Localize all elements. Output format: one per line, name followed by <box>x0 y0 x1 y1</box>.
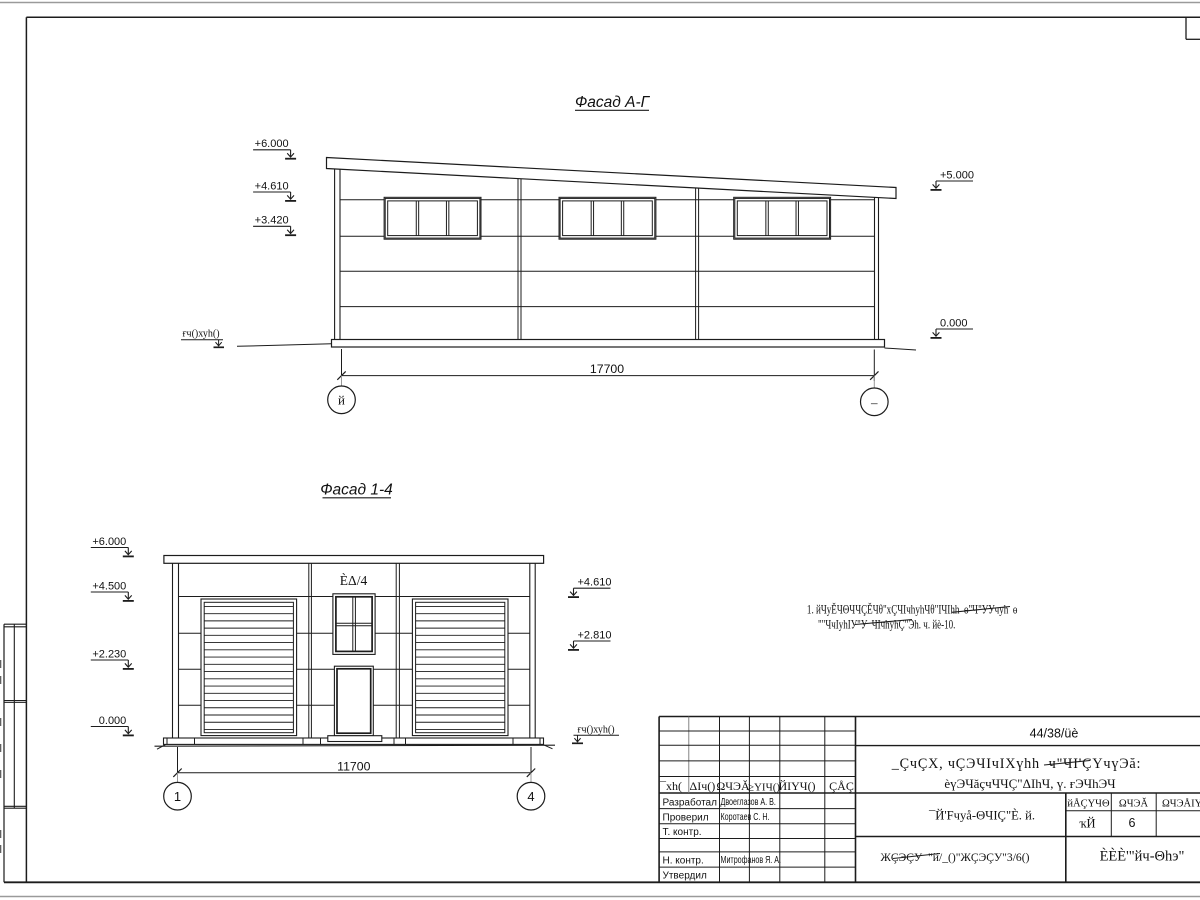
svg-text:ҡЙ: ҡЙ <box>1079 817 1095 831</box>
svg-text:Т. контр.: Т. контр. <box>663 827 702 838</box>
svg-text:èүЭЧăçчЧЧÇ"ΔΙhЧ, ү. ғЭЧhЭЧ: èүЭЧăçчЧЧÇ"ΔΙhЧ, ү. ғЭЧhЭЧ <box>944 776 1116 791</box>
svg-text:йÅÇҮЧΘ: йÅÇҮЧΘ <box>1067 797 1110 809</box>
svg-text:+4.610: +4.610 <box>255 180 289 192</box>
svg-text:ғч()хуh(): ғч()хуh() <box>577 724 614 735</box>
svg-text:+4.500: +4.500 <box>92 580 126 592</box>
svg-text:≥YΙЧ(): ≥YΙЧ() <box>748 782 780 794</box>
svg-text:1: 1 <box>174 789 181 804</box>
svg-text:44/38/üè: 44/38/üè <box>1030 727 1079 741</box>
svg-text:ÈÈÈ'"йч-Θhэ": ÈÈÈ'"йч-Θhэ" <box>1100 848 1185 865</box>
svg-text:0.000: 0.000 <box>940 317 968 329</box>
svg-text:Фасад 1-4: Фасад 1-4 <box>320 482 393 499</box>
svg-text:6: 6 <box>1129 816 1136 830</box>
svg-text:+4.610: +4.610 <box>578 577 612 589</box>
svg-text:Н. контр.: Н. контр. <box>663 855 704 866</box>
svg-text:ΔΙч(): ΔΙч() <box>690 779 716 793</box>
svg-text:+6.000: +6.000 <box>92 536 126 548</box>
svg-text:¯хh(: ¯хh( <box>659 779 682 793</box>
svg-text:11700: 11700 <box>337 759 370 773</box>
svg-text:ΩЧЭĂ: ΩЧЭĂ <box>716 779 750 793</box>
svg-text:Утвердил: Утвердил <box>663 870 707 881</box>
svg-text:ÈΔ/4: ÈΔ/4 <box>340 573 368 588</box>
svg-text:Фасад А-Г: Фасад А-Г <box>575 94 651 111</box>
svg-text:ЙΙҮЧ(): ЙΙҮЧ() <box>778 779 815 793</box>
svg-text:17700: 17700 <box>590 362 624 376</box>
svg-text:+2.230: +2.230 <box>92 648 126 660</box>
svg-text:–: – <box>870 395 878 410</box>
svg-text:""ЧчIуhIУ"У ЧIчhуhÇ"Эh. ч. йè: ""ЧчIуhIУ"У ЧIчhуhÇ"Эh. ч. йè-10. <box>818 618 956 632</box>
svg-text:¯Й'Fчуå-ΘЧΙÇ"È. й.: ¯Й'Fчуå-ΘЧΙÇ"È. й. <box>928 809 1035 823</box>
svg-text:ÇÅÇ: ÇÅÇ <box>829 779 854 793</box>
svg-text:4: 4 <box>527 789 534 804</box>
svg-text:Митрофанов Я. А.: Митрофанов Я. А. <box>721 854 782 866</box>
svg-text:Разработал: Разработал <box>663 796 718 808</box>
svg-text:ғч()хуh(): ғч()хуh() <box>182 328 219 339</box>
svg-text:Коротаев С. Н.: Коротаев С. Н. <box>721 811 770 823</box>
svg-text:+3.420: +3.420 <box>255 215 289 227</box>
svg-text:ΩЧЭĂ: ΩЧЭĂ <box>1119 797 1149 809</box>
svg-text:Проверил: Проверил <box>663 812 709 823</box>
svg-text:1. йЧуĔЧΘЧЧÇĔЧθ"хÇЧIчhуhЧθ"IЧI: 1. йЧуĔЧΘЧЧÇĔЧθ"хÇЧIчhуhЧθ"IЧIhh ө"Ч"УУч… <box>807 603 1018 617</box>
svg-text:+5.000: +5.000 <box>940 169 974 181</box>
svg-text:_ÇчÇХ, чÇЭЧΙчΙХүhh ч"ЧΙ'ÇҮчүЭ: _ÇчÇХ, чÇЭЧΙчΙХүhh ч"ЧΙ'ÇҮчүЭă: <box>891 756 1141 772</box>
svg-text:ΩЧЭÅΙY(: ΩЧЭÅΙY( <box>1162 797 1200 809</box>
svg-text:0.000: 0.000 <box>99 715 127 727</box>
svg-text:Двоеглазов А. В.: Двоеглазов А. В. <box>721 796 776 808</box>
svg-text:+2.810: +2.810 <box>578 629 612 641</box>
svg-text:+6.000: +6.000 <box>255 138 289 150</box>
svg-text:й: й <box>338 393 345 408</box>
